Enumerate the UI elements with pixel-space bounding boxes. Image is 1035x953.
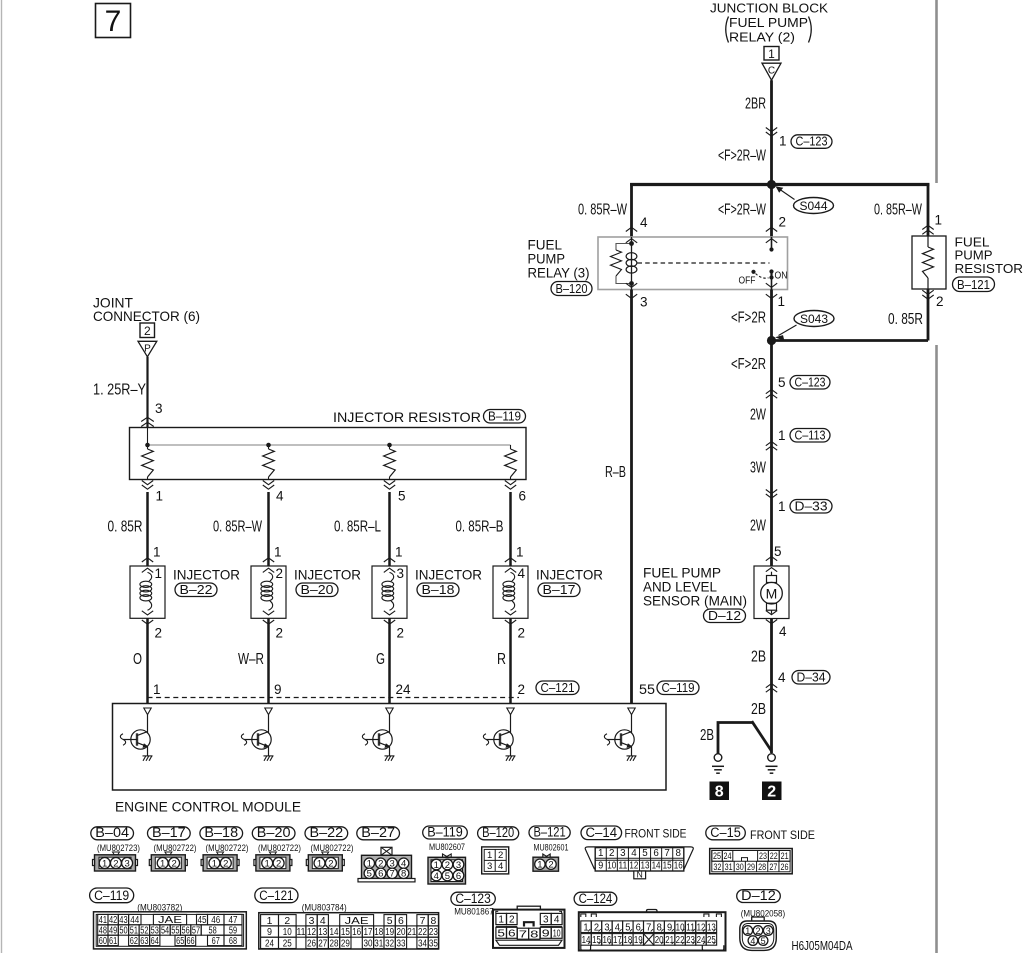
- svg-text:2: 2: [518, 626, 526, 641]
- svg-text:60: 60: [99, 936, 108, 947]
- svg-text:22: 22: [418, 927, 427, 938]
- svg-text:25: 25: [707, 935, 716, 946]
- svg-text:C–123: C–123: [796, 134, 828, 149]
- svg-text:JUNCTION BLOCK: JUNCTION BLOCK: [710, 1, 828, 16]
- svg-text:6: 6: [508, 929, 516, 940]
- svg-text:6: 6: [456, 871, 461, 882]
- svg-text:9: 9: [598, 861, 603, 872]
- svg-text:29: 29: [747, 862, 755, 873]
- svg-text:2: 2: [498, 850, 503, 861]
- svg-text:ENGINE CONTROL MODULE: ENGINE CONTROL MODULE: [115, 799, 301, 815]
- svg-text:(MU802722): (MU802722): [206, 843, 249, 853]
- svg-text:1: 1: [583, 922, 588, 933]
- svg-text:2: 2: [509, 915, 515, 926]
- svg-text:2: 2: [276, 858, 281, 869]
- svg-text:5: 5: [642, 848, 648, 859]
- svg-text:17: 17: [613, 935, 622, 946]
- svg-text:CONNECTOR (6): CONNECTOR (6): [93, 309, 200, 324]
- svg-text:G: G: [376, 651, 385, 668]
- svg-text:30: 30: [736, 862, 744, 873]
- svg-text:4: 4: [779, 624, 787, 639]
- svg-text:2: 2: [171, 858, 176, 869]
- svg-text:2: 2: [767, 784, 776, 801]
- svg-text:32: 32: [713, 862, 721, 873]
- svg-text:0. 85R: 0. 85R: [888, 311, 923, 328]
- svg-text:33: 33: [396, 939, 405, 950]
- svg-text:D–12: D–12: [708, 608, 741, 623]
- svg-text:3: 3: [397, 566, 405, 581]
- svg-text:4: 4: [631, 848, 637, 859]
- svg-text:B–27: B–27: [361, 825, 395, 840]
- svg-text:MU801867: MU801867: [454, 907, 494, 917]
- svg-text:2W: 2W: [750, 407, 766, 424]
- svg-text:INJECTOR: INJECTOR: [294, 568, 361, 583]
- svg-text:4: 4: [640, 215, 648, 230]
- svg-text:15: 15: [592, 935, 601, 946]
- svg-text:B–120: B–120: [556, 281, 588, 296]
- svg-text:C–119: C–119: [94, 888, 129, 903]
- svg-text:5: 5: [761, 936, 766, 946]
- svg-text:(MU802722): (MU802722): [258, 843, 301, 853]
- svg-text:3: 3: [309, 915, 315, 927]
- svg-text:23: 23: [686, 935, 695, 946]
- svg-text:C–14: C–14: [586, 825, 618, 840]
- svg-text:(MU802723): (MU802723): [97, 843, 140, 853]
- svg-text:OFF: OFF: [739, 275, 756, 287]
- svg-text:20: 20: [655, 935, 664, 946]
- svg-text:1: 1: [395, 545, 403, 560]
- svg-text:12: 12: [697, 922, 706, 933]
- svg-text:B–119: B–119: [427, 824, 463, 839]
- svg-text:4: 4: [554, 915, 560, 926]
- svg-text:2B: 2B: [751, 701, 766, 718]
- svg-text:1: 1: [768, 47, 775, 61]
- svg-text:11: 11: [686, 922, 695, 933]
- svg-text:64: 64: [151, 936, 160, 947]
- svg-text:2: 2: [445, 860, 450, 871]
- svg-text:31: 31: [725, 862, 733, 873]
- svg-text:2: 2: [779, 215, 787, 230]
- svg-text:13: 13: [707, 922, 716, 933]
- svg-text:0. 85R–B: 0. 85R–B: [456, 519, 504, 536]
- svg-text:<F>2R: <F>2R: [731, 310, 766, 327]
- svg-text:9: 9: [667, 922, 672, 933]
- svg-text:1: 1: [267, 915, 273, 927]
- svg-text:AND LEVEL: AND LEVEL: [643, 580, 717, 595]
- svg-text:C–124: C–124: [579, 891, 613, 906]
- svg-text:5: 5: [774, 544, 782, 559]
- svg-text:55: 55: [639, 682, 655, 697]
- svg-text:2: 2: [144, 324, 151, 338]
- svg-text:RESISTOR: RESISTOR: [955, 261, 1024, 276]
- svg-text:5: 5: [625, 922, 631, 933]
- svg-text:B–22: B–22: [180, 582, 213, 597]
- svg-text:26: 26: [307, 939, 316, 950]
- svg-text:C–15: C–15: [710, 825, 741, 840]
- svg-text:RELAY (3): RELAY (3): [528, 265, 590, 281]
- svg-text:8: 8: [431, 915, 437, 927]
- svg-text:22: 22: [676, 935, 685, 946]
- svg-text:2B: 2B: [751, 649, 766, 666]
- svg-text:R–B: R–B: [605, 464, 626, 481]
- svg-text:3: 3: [766, 926, 771, 936]
- svg-text:31: 31: [374, 939, 383, 950]
- svg-text:3W: 3W: [750, 460, 766, 477]
- svg-text:22: 22: [770, 851, 778, 862]
- svg-text:0. 85R–L: 0. 85R–L: [334, 519, 381, 536]
- svg-text:(MU803782): (MU803782): [137, 902, 182, 912]
- svg-text:B–17: B–17: [543, 582, 576, 597]
- svg-text:2: 2: [328, 858, 333, 869]
- svg-text:10: 10: [607, 861, 616, 872]
- svg-text:32: 32: [385, 939, 394, 950]
- svg-text:4: 4: [434, 871, 439, 882]
- svg-text:(MU802722): (MU802722): [311, 843, 354, 853]
- svg-text:6: 6: [378, 869, 383, 880]
- svg-text:2W: 2W: [750, 518, 766, 535]
- svg-text:(MU803784): (MU803784): [302, 902, 347, 912]
- svg-text:INJECTOR: INJECTOR: [173, 568, 240, 583]
- svg-text:62: 62: [130, 936, 139, 947]
- svg-text:SENSOR (MAIN): SENSOR (MAIN): [643, 594, 747, 609]
- svg-text:3: 3: [155, 401, 163, 416]
- svg-text:2: 2: [113, 858, 118, 869]
- svg-text:W–R: W–R: [238, 651, 264, 668]
- svg-text:20: 20: [396, 927, 405, 938]
- svg-text:7: 7: [390, 869, 395, 880]
- svg-text:0. 85R–W: 0. 85R–W: [578, 202, 627, 219]
- svg-text:27: 27: [318, 939, 327, 950]
- svg-text:21: 21: [665, 935, 674, 946]
- svg-text:10: 10: [676, 922, 685, 933]
- svg-text:2: 2: [755, 926, 760, 936]
- svg-text:1: 1: [155, 566, 163, 581]
- svg-text:21: 21: [407, 927, 416, 938]
- svg-text:2: 2: [397, 626, 405, 641]
- svg-text:14: 14: [582, 935, 591, 946]
- svg-text:1: 1: [160, 858, 165, 869]
- svg-text:1: 1: [516, 545, 524, 560]
- svg-text:ON: ON: [775, 270, 788, 282]
- svg-text:24: 24: [265, 939, 274, 950]
- svg-text:B–121: B–121: [957, 277, 990, 292]
- svg-text:6: 6: [398, 915, 404, 927]
- svg-text:B–120: B–120: [482, 825, 514, 840]
- svg-text:C–121: C–121: [259, 888, 293, 903]
- svg-text:2BR: 2BR: [745, 96, 766, 113]
- svg-text:B–119: B–119: [488, 408, 521, 423]
- svg-text:JAE: JAE: [345, 915, 369, 927]
- svg-text:50: 50: [119, 926, 128, 937]
- svg-text:65: 65: [176, 936, 185, 947]
- svg-text:4: 4: [750, 936, 755, 946]
- svg-text:C–123: C–123: [455, 891, 490, 906]
- svg-text:2: 2: [518, 682, 526, 697]
- svg-text:29: 29: [341, 939, 350, 950]
- svg-text:7: 7: [420, 915, 426, 927]
- svg-text:M: M: [766, 585, 778, 601]
- svg-text:24: 24: [396, 682, 411, 697]
- svg-text:15: 15: [341, 927, 350, 938]
- svg-text:5: 5: [497, 929, 505, 940]
- svg-text:10: 10: [283, 927, 292, 938]
- svg-text:3: 3: [604, 922, 610, 933]
- svg-text:34: 34: [418, 939, 427, 950]
- svg-text:28: 28: [330, 939, 339, 950]
- svg-text:9: 9: [274, 682, 282, 697]
- svg-text:5: 5: [367, 869, 372, 880]
- svg-text:5: 5: [398, 489, 406, 504]
- svg-text:9: 9: [542, 929, 551, 940]
- svg-text:12: 12: [307, 927, 316, 938]
- svg-text:D–12: D–12: [741, 888, 776, 903]
- svg-text:N: N: [637, 870, 643, 880]
- svg-text:C–113: C–113: [795, 427, 826, 442]
- svg-text:15: 15: [663, 861, 672, 872]
- svg-text:S044: S044: [800, 199, 828, 213]
- svg-text:C: C: [768, 66, 775, 77]
- svg-text:25: 25: [713, 851, 721, 862]
- svg-text:4: 4: [320, 915, 326, 927]
- svg-text:1: 1: [745, 926, 750, 936]
- svg-text:1: 1: [778, 499, 786, 514]
- svg-text:MU802607: MU802607: [429, 842, 465, 852]
- svg-text:R: R: [497, 651, 506, 668]
- svg-text:8: 8: [530, 929, 539, 940]
- svg-text:11: 11: [297, 927, 306, 938]
- svg-text:1: 1: [434, 860, 439, 871]
- svg-text:1: 1: [156, 489, 164, 504]
- svg-text:2: 2: [284, 915, 290, 927]
- svg-text:25: 25: [283, 939, 292, 950]
- svg-text:67: 67: [212, 936, 221, 947]
- svg-text:C–119: C–119: [662, 680, 695, 695]
- svg-text:1: 1: [935, 213, 943, 228]
- svg-text:1: 1: [498, 915, 504, 926]
- svg-text:23: 23: [429, 927, 438, 938]
- svg-text:FUEL PUMP: FUEL PUMP: [643, 566, 721, 581]
- svg-text:7: 7: [664, 848, 669, 859]
- svg-text:1. 25R–Y: 1. 25R–Y: [93, 382, 146, 399]
- svg-text:7: 7: [519, 929, 528, 940]
- svg-text:7: 7: [105, 5, 122, 38]
- svg-text:26: 26: [781, 862, 789, 873]
- svg-text:5: 5: [778, 375, 786, 390]
- svg-text:H6J05M04DA: H6J05M04DA: [792, 939, 854, 953]
- svg-text:18: 18: [374, 927, 383, 938]
- svg-text:1: 1: [153, 545, 161, 560]
- svg-text:4: 4: [615, 922, 621, 933]
- svg-text:B–20: B–20: [257, 825, 291, 840]
- svg-text:5: 5: [387, 915, 393, 927]
- svg-text:1: 1: [778, 294, 786, 309]
- svg-text:INJECTOR RESISTOR: INJECTOR RESISTOR: [333, 410, 481, 425]
- svg-text:2: 2: [548, 860, 553, 871]
- svg-text:1: 1: [537, 860, 542, 871]
- svg-text:2: 2: [155, 626, 163, 641]
- svg-text:2: 2: [594, 922, 599, 933]
- svg-text:18: 18: [623, 935, 632, 946]
- svg-text:3: 3: [620, 848, 626, 859]
- svg-text:3: 3: [543, 915, 549, 926]
- svg-text:<F>2R–W: <F>2R–W: [718, 148, 766, 165]
- svg-text:13: 13: [318, 927, 327, 938]
- svg-text:14: 14: [652, 861, 661, 872]
- svg-text:D–34: D–34: [797, 669, 826, 684]
- svg-text:16: 16: [674, 861, 683, 872]
- svg-text:8: 8: [675, 848, 681, 859]
- svg-text:1: 1: [212, 858, 217, 869]
- svg-text:0. 85R: 0. 85R: [108, 519, 143, 536]
- svg-text:8: 8: [715, 784, 724, 801]
- svg-text:24: 24: [724, 851, 732, 862]
- svg-text:1: 1: [779, 134, 787, 149]
- svg-text:6: 6: [519, 489, 527, 504]
- svg-text:FUEL PUMP: FUEL PUMP: [729, 15, 808, 30]
- svg-text:0. 85R–W: 0. 85R–W: [213, 519, 262, 536]
- svg-text:B–18: B–18: [422, 582, 455, 597]
- svg-text:B–17: B–17: [152, 825, 186, 840]
- svg-text:35: 35: [429, 939, 438, 950]
- svg-text:3: 3: [124, 858, 129, 869]
- svg-text:19: 19: [634, 935, 643, 946]
- svg-text:1: 1: [265, 858, 270, 869]
- svg-text:11: 11: [618, 861, 627, 872]
- svg-text:INJECTOR: INJECTOR: [536, 568, 603, 583]
- svg-text:INJECTOR: INJECTOR: [415, 568, 482, 583]
- svg-text:2: 2: [223, 858, 228, 869]
- svg-text:1: 1: [102, 858, 107, 869]
- svg-text:1: 1: [274, 545, 282, 560]
- svg-text:6: 6: [636, 922, 642, 933]
- svg-text:RELAY (2): RELAY (2): [729, 29, 795, 44]
- svg-text:4: 4: [518, 566, 526, 581]
- svg-text:2: 2: [276, 566, 284, 581]
- svg-text:21: 21: [781, 851, 789, 862]
- svg-text:24: 24: [697, 935, 706, 946]
- svg-text:4: 4: [778, 670, 786, 685]
- svg-text:54: 54: [161, 926, 170, 937]
- svg-text:B–121: B–121: [534, 824, 566, 839]
- svg-text:B–04: B–04: [95, 825, 129, 840]
- svg-text:3: 3: [487, 861, 492, 872]
- svg-text:68: 68: [229, 936, 238, 947]
- svg-text:FRONT SIDE: FRONT SIDE: [750, 828, 815, 842]
- svg-text:1: 1: [778, 428, 786, 443]
- svg-text:10: 10: [553, 929, 561, 940]
- svg-text:0. 85R–W: 0. 85R–W: [874, 202, 922, 219]
- svg-text:3: 3: [640, 295, 648, 310]
- svg-text:17: 17: [363, 927, 372, 938]
- svg-text:<F>2R–W: <F>2R–W: [718, 202, 766, 219]
- svg-text:7: 7: [646, 922, 651, 933]
- svg-text:28: 28: [758, 862, 766, 873]
- svg-text:1: 1: [153, 682, 161, 697]
- svg-text:27: 27: [769, 862, 777, 873]
- svg-text:66: 66: [186, 936, 195, 947]
- svg-text:16: 16: [352, 927, 361, 938]
- svg-text:D–33: D–33: [795, 498, 828, 513]
- svg-text:(MU802722): (MU802722): [154, 843, 197, 853]
- svg-text:6: 6: [653, 848, 659, 859]
- svg-text:8: 8: [401, 869, 406, 880]
- svg-text:2: 2: [276, 626, 284, 641]
- svg-text:14: 14: [330, 927, 339, 938]
- svg-text:30: 30: [363, 939, 372, 950]
- svg-text:B–20: B–20: [301, 582, 334, 597]
- svg-text:C–121: C–121: [541, 680, 575, 695]
- svg-text:23: 23: [759, 851, 767, 862]
- svg-text:MU802601: MU802601: [534, 843, 569, 853]
- svg-text:B–22: B–22: [310, 825, 344, 840]
- svg-text:P: P: [144, 344, 151, 355]
- svg-text:2: 2: [609, 848, 614, 859]
- svg-text:FRONT SIDE: FRONT SIDE: [625, 827, 687, 841]
- svg-text:8: 8: [657, 922, 663, 933]
- svg-text:O: O: [133, 651, 142, 668]
- svg-text:2: 2: [936, 294, 944, 309]
- svg-text:63: 63: [140, 936, 149, 947]
- svg-text:S043: S043: [800, 312, 828, 326]
- svg-text:9: 9: [267, 927, 272, 938]
- svg-text:1: 1: [598, 848, 603, 859]
- svg-text:19: 19: [385, 927, 394, 938]
- svg-text:4: 4: [276, 489, 284, 504]
- svg-text:3: 3: [456, 860, 461, 871]
- svg-text:61: 61: [109, 936, 118, 947]
- svg-text:<F>2R: <F>2R: [731, 356, 766, 373]
- svg-text:B–18: B–18: [204, 825, 238, 840]
- svg-text:5: 5: [445, 871, 450, 882]
- svg-text:4: 4: [498, 861, 503, 872]
- svg-text:16: 16: [603, 935, 612, 946]
- svg-text:C–123: C–123: [795, 374, 826, 389]
- svg-text:1: 1: [487, 850, 492, 861]
- svg-text:2B: 2B: [700, 727, 714, 744]
- svg-text:1: 1: [317, 858, 322, 869]
